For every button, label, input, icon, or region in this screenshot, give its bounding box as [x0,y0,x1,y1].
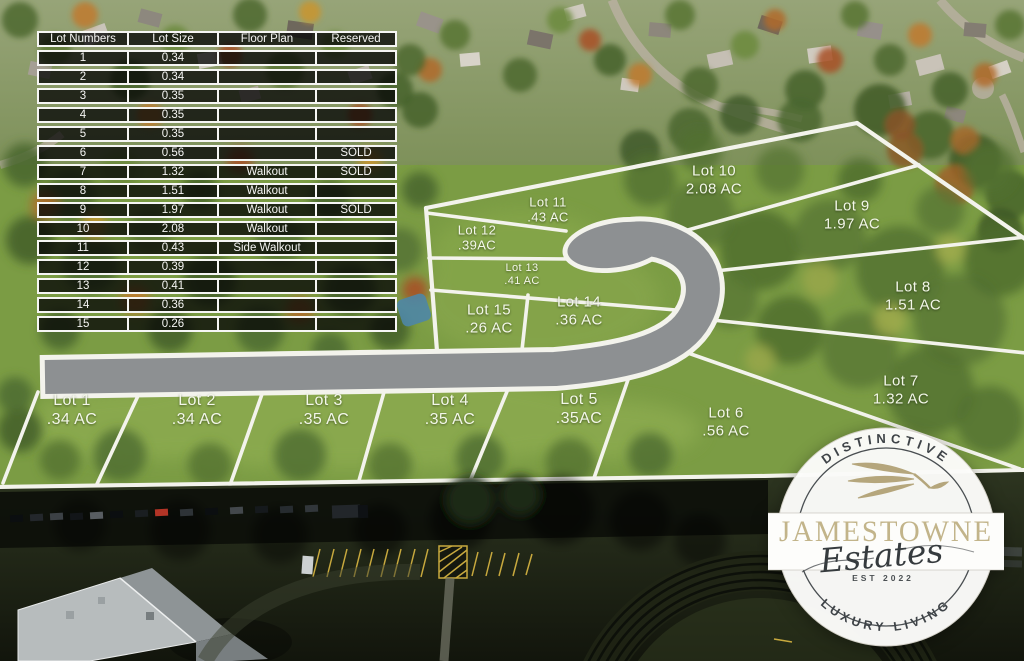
cell-14-1: 0.36 [127,297,217,313]
cell-7-3: SOLD [315,164,397,180]
table-row-4: 40.35 [37,107,397,123]
col-header-0: Lot Numbers [37,31,127,47]
cell-7-2: Walkout [217,164,315,180]
table-header-row: Lot NumbersLot SizeFloor PlanReserved [37,31,397,47]
cell-11-3 [315,240,397,256]
sidewalk [444,578,450,661]
cell-11-2: Side Walkout [217,240,315,256]
cell-1-0: 1 [37,50,127,66]
cell-11-0: 11 [37,240,127,256]
cell-2-3 [315,69,397,85]
cell-9-2: Walkout [217,202,315,218]
scene: Lot NumbersLot SizeFloor PlanReserved 10… [0,0,1024,661]
cell-13-2 [217,278,315,294]
cell-2-1: 0.34 [127,69,217,85]
cell-4-3 [315,107,397,123]
table-row-6: 60.56SOLD [37,145,397,161]
cell-9-1: 1.97 [127,202,217,218]
cell-3-2 [217,88,315,104]
jamestowne-estates-badge: DISTINCTIVE JAMESTOWNE Estates EST 2022 … [762,424,1010,661]
cell-8-2: Walkout [217,183,315,199]
cell-14-2 [217,297,315,313]
cell-6-3: SOLD [315,145,397,161]
cell-10-1: 2.08 [127,221,217,237]
cell-5-3 [315,126,397,142]
table-row-14: 140.36 [37,297,397,313]
table-row-11: 110.43Side Walkout [37,240,397,256]
cell-8-0: 8 [37,183,127,199]
white-van [301,556,313,575]
cell-4-1: 0.35 [127,107,217,123]
cell-8-1: 1.51 [127,183,217,199]
cell-5-0: 5 [37,126,127,142]
cell-15-1: 0.26 [127,316,217,332]
cell-12-1: 0.39 [127,259,217,275]
lot-table-body: 10.3420.3430.3540.3550.3560.56SOLD71.32W… [37,50,397,332]
cell-4-0: 4 [37,107,127,123]
cell-7-0: 7 [37,164,127,180]
table-row-8: 81.51Walkout [37,183,397,199]
cell-3-0: 3 [37,88,127,104]
cell-1-1: 0.34 [127,50,217,66]
table-row-13: 130.41 [37,278,397,294]
cell-6-2 [217,145,315,161]
table-row-10: 102.08Walkout [37,221,397,237]
cell-8-3 [315,183,397,199]
cell-4-2 [217,107,315,123]
cell-5-2 [217,126,315,142]
cell-2-0: 2 [37,69,127,85]
table-row-2: 20.34 [37,69,397,85]
table-row-15: 150.26 [37,316,397,332]
cell-10-3 [315,221,397,237]
cell-1-2 [217,50,315,66]
cell-13-3 [315,278,397,294]
cell-7-1: 1.32 [127,164,217,180]
table-row-3: 30.35 [37,88,397,104]
cell-3-1: 0.35 [127,88,217,104]
cell-12-2 [217,259,315,275]
col-header-3: Reserved [315,31,397,47]
cell-14-0: 14 [37,297,127,313]
cell-10-2: Walkout [217,221,315,237]
col-header-2: Floor Plan [217,31,315,47]
col-header-1: Lot Size [127,31,217,47]
lot-table-head: Lot NumbersLot SizeFloor PlanReserved [37,31,397,47]
cell-13-1: 0.41 [127,278,217,294]
cell-15-2 [217,316,315,332]
table-row-1: 10.34 [37,50,397,66]
cell-11-1: 0.43 [127,240,217,256]
cell-15-0: 15 [37,316,127,332]
table-row-9: 91.97WalkoutSOLD [37,202,397,218]
cell-1-3 [315,50,397,66]
badge-est-text: EST 2022 [852,573,914,583]
table-row-12: 120.39 [37,259,397,275]
cell-9-3: SOLD [315,202,397,218]
cell-6-0: 6 [37,145,127,161]
table-row-7: 71.32WalkoutSOLD [37,164,397,180]
cell-6-1: 0.56 [127,145,217,161]
table-row-5: 50.35 [37,126,397,142]
cell-12-0: 12 [37,259,127,275]
cell-10-0: 10 [37,221,127,237]
cell-15-3 [315,316,397,332]
cell-9-0: 9 [37,202,127,218]
cell-14-3 [315,297,397,313]
cell-13-0: 13 [37,278,127,294]
cell-3-3 [315,88,397,104]
cell-5-1: 0.35 [127,126,217,142]
lot-info-table: Lot NumbersLot SizeFloor PlanReserved 10… [37,28,397,335]
cell-2-2 [217,69,315,85]
cell-12-3 [315,259,397,275]
